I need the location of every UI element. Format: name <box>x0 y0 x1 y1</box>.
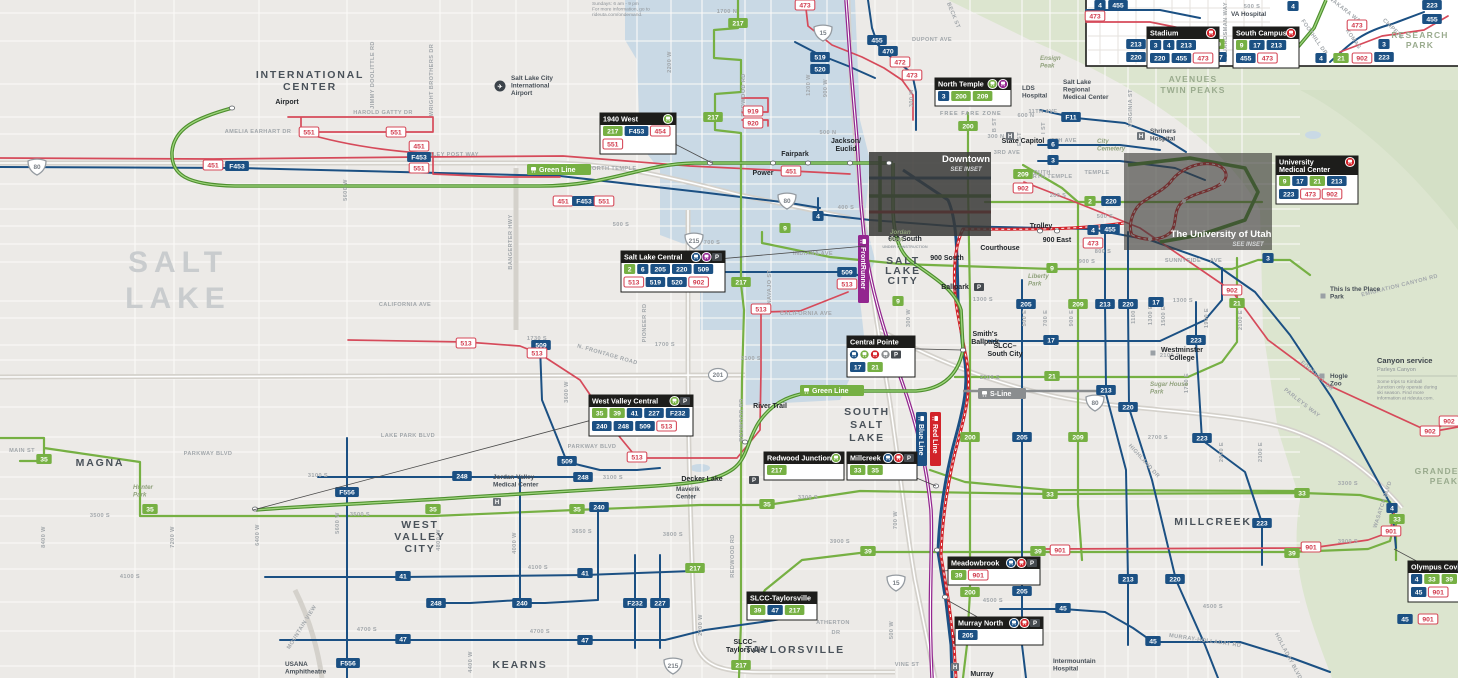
svg-text:3500 S: 3500 S <box>350 512 370 518</box>
street-label: AMELIA EARHART DR <box>225 129 292 135</box>
route-badge-473: 473 <box>1085 11 1105 21</box>
route-badge-F232: F232 <box>623 598 647 608</box>
svg-text:454: 454 <box>655 128 667 135</box>
route-badge-902: 902 <box>1322 189 1342 199</box>
svg-text:551: 551 <box>598 198 610 205</box>
svg-text:F453: F453 <box>229 163 245 170</box>
route-badge-F232: F232 <box>666 408 690 418</box>
svg-text:4: 4 <box>1091 227 1095 234</box>
route-badge-472: 472 <box>890 57 910 67</box>
svg-text:Liberty: Liberty <box>1028 273 1049 280</box>
svg-text:248: 248 <box>456 473 468 480</box>
svg-text:SUNNYSIDE: SUNNYSIDE <box>1165 258 1201 264</box>
svg-text:6400 W: 6400 W <box>255 524 261 546</box>
route-badge-220: 220 <box>1126 52 1146 62</box>
route-badge-248: 248 <box>614 421 634 431</box>
street-label: 700 E <box>1043 310 1049 327</box>
station-label-courthouse: Courthouse <box>980 245 1019 252</box>
svg-text:VIRGINIA ST: VIRGINIA ST <box>1128 89 1134 127</box>
svg-text:Amphitheatre: Amphitheatre <box>285 669 327 676</box>
street-label: 3100 S <box>603 475 623 481</box>
svg-text:International: International <box>511 83 550 90</box>
svg-text:900 South: 900 South <box>930 255 963 262</box>
station-label-900-east: 900 East <box>1043 237 1072 244</box>
street-label: 2200 W <box>667 51 673 73</box>
street-label: 4700 S <box>357 627 377 633</box>
svg-text:Hunter: Hunter <box>133 484 154 491</box>
svg-text:455: 455 <box>1104 226 1116 233</box>
d2232a-line-icon <box>1286 28 1295 37</box>
svg-text:920: 920 <box>747 120 759 127</box>
callout-redwood-junction: Redwood Junction217 <box>764 452 844 480</box>
route-badge-519: 519 <box>646 277 666 287</box>
d2232a-line-icon <box>1206 28 1215 37</box>
street-label: 500 N <box>820 130 837 136</box>
park-ride-icon: P <box>974 283 984 291</box>
svg-text:513: 513 <box>841 281 853 288</box>
svg-text:WRIGHT BROTHERS DR: WRIGHT BROTHERS DR <box>429 44 435 116</box>
svg-text:217: 217 <box>735 279 747 286</box>
route-badge-520: 520 <box>810 64 830 74</box>
station-dot <box>1054 229 1059 233</box>
svg-text:Ballpark: Ballpark <box>941 284 969 291</box>
route-badge-39: 39 <box>951 570 966 580</box>
svg-text:Hospital: Hospital <box>1150 136 1175 143</box>
svg-text:473: 473 <box>1305 191 1317 198</box>
street-label: 800 S <box>1095 249 1112 255</box>
route-badge-509: 509 <box>837 267 857 277</box>
svg-text:1200 W: 1200 W <box>806 74 812 96</box>
route-badge-217: 217 <box>731 277 751 287</box>
svg-text:217: 217 <box>607 128 619 135</box>
svg-text:213: 213 <box>1331 178 1343 185</box>
svg-text:1940 West: 1940 West <box>603 115 639 124</box>
svg-text:8400 W: 8400 W <box>41 526 47 548</box>
svg-text:509: 509 <box>561 458 573 465</box>
route-badge-4: 4 <box>1094 0 1105 10</box>
svg-text:6: 6 <box>641 266 645 273</box>
svg-text:Red Line: Red Line <box>931 424 938 454</box>
svg-text:21: 21 <box>871 364 879 371</box>
route-badge-902: 902 <box>1222 285 1242 295</box>
station-dot <box>934 548 939 552</box>
svg-text:KEARNS: KEARNS <box>492 659 547 671</box>
svg-text:901: 901 <box>973 572 985 579</box>
svg-text:220: 220 <box>1130 54 1142 61</box>
svg-text:205: 205 <box>655 266 667 273</box>
svg-text:Zoo: Zoo <box>1330 381 1342 388</box>
svg-text:LDS: LDS <box>1022 85 1036 92</box>
svg-text:JIMMY DOOLITTLE RD: JIMMY DOOLITTLE RD <box>370 41 376 109</box>
callout-south-campus: South Campus917213455473 <box>1233 27 1299 68</box>
svg-text:513: 513 <box>531 350 543 357</box>
route-badge-513: 513 <box>657 421 677 431</box>
svg-text:473: 473 <box>1262 55 1274 62</box>
street-label: 3900 S <box>830 539 850 545</box>
route-badge-2: 2 <box>624 264 635 274</box>
svg-text:North Temple: North Temple <box>938 80 984 89</box>
svg-text:Shriners: Shriners <box>1150 128 1176 135</box>
line-label-blue-line: Blue Line <box>916 412 927 466</box>
route-badge-F11: F11 <box>1061 112 1081 122</box>
route-badge-455: 455 <box>1236 53 1256 63</box>
svg-text:INTERNATIONAL: INTERNATIONAL <box>256 69 364 81</box>
svg-text:21: 21 <box>1337 55 1345 62</box>
svg-text:VA Hospital: VA Hospital <box>1231 11 1266 18</box>
street-label: 4100 S <box>528 565 548 571</box>
area-label-salt-lake-city: SALTLAKECITY <box>885 255 921 287</box>
svg-text:209: 209 <box>1017 171 1029 178</box>
svg-text:33: 33 <box>1298 490 1306 497</box>
svg-text:209: 209 <box>977 93 989 100</box>
route-badge-4: 4 <box>1315 53 1326 63</box>
street-label: 500 E <box>1022 310 1028 327</box>
route-badge-213: 213 <box>1095 299 1115 309</box>
route-badge-227: 227 <box>644 408 664 418</box>
svg-text:Park: Park <box>1150 389 1164 396</box>
svg-text:Trolley: Trolley <box>1030 223 1053 230</box>
route-badge-F556: F556 <box>335 487 359 497</box>
route-badge-902: 902 <box>1439 416 1458 426</box>
svg-text:200: 200 <box>964 589 976 596</box>
svg-text:39: 39 <box>613 410 621 417</box>
svg-text:33: 33 <box>854 467 862 474</box>
route-badge-F453: F453 <box>572 196 596 206</box>
svg-text:AVENUES: AVENUES <box>1169 74 1218 84</box>
svg-text:248: 248 <box>577 474 589 481</box>
street-label: 4700 S <box>530 629 550 635</box>
svg-text:This Is the Place: This Is the Place <box>1330 286 1381 293</box>
route-badge-513: 513 <box>527 348 547 358</box>
svg-text:Airport: Airport <box>275 99 299 106</box>
line-label-frontrunner: FrontRunner <box>858 235 869 303</box>
svg-text:15: 15 <box>819 30 827 37</box>
callout-north-temple: North Temple3200209FREE FARE ZONE <box>935 78 1011 117</box>
route-badge-551: 551 <box>386 127 406 137</box>
svg-text:35: 35 <box>146 506 154 513</box>
svg-text:227: 227 <box>654 600 666 607</box>
route-badge-45: 45 <box>1397 614 1412 624</box>
route-badge-33: 33 <box>1294 488 1309 498</box>
airport-icon: ✈ <box>495 81 506 92</box>
svg-text:Canyon service: Canyon service <box>1377 356 1432 365</box>
svg-text:470: 470 <box>882 48 894 55</box>
svg-text:REDWOOD RD: REDWOOD RD <box>739 398 745 441</box>
route-badge-45: 45 <box>1411 587 1426 597</box>
svg-text:17: 17 <box>1152 299 1160 306</box>
route-badge-519: 519 <box>810 52 830 62</box>
svg-text:9: 9 <box>1240 42 1244 49</box>
svg-text:The University of Utah: The University of Utah <box>1171 229 1272 240</box>
svg-text:2100 E: 2100 E <box>1238 310 1244 330</box>
route-badge-45: 45 <box>1055 603 1070 613</box>
1c5084-line-icon <box>883 453 892 462</box>
svg-text:9: 9 <box>1050 265 1054 272</box>
route-badge-4: 4 <box>1087 225 1098 235</box>
street-label: 1300 E <box>1148 305 1154 325</box>
svg-text:3100 S: 3100 S <box>308 473 328 479</box>
route-badge-2: 2 <box>1084 196 1095 206</box>
svg-text:80: 80 <box>1091 400 1099 407</box>
svg-text:SEE INSET: SEE INSET <box>950 167 983 173</box>
street-label: 500 S <box>613 222 630 228</box>
svg-text:217: 217 <box>707 114 719 121</box>
street-label: 2700 S <box>1148 435 1168 441</box>
svg-text:21: 21 <box>1233 300 1241 307</box>
route-badge-217: 217 <box>603 126 623 136</box>
street-label: 3500 S <box>350 512 370 518</box>
svg-text:33: 33 <box>1428 576 1436 583</box>
route-badge-220: 220 <box>672 264 692 274</box>
park-ride-icon: P <box>891 351 901 359</box>
route-badge-9: 9 <box>1279 176 1290 186</box>
route-badge-902: 902 <box>1352 53 1372 63</box>
svg-text:900 W: 900 W <box>823 79 829 97</box>
svg-text:TEMPLE: TEMPLE <box>1084 170 1109 176</box>
svg-text:BANGERTER HWY: BANGERTER HWY <box>508 214 514 269</box>
route-badge-223: 223 <box>1279 189 1299 199</box>
route-badge-21: 21 <box>1310 176 1325 186</box>
svg-text:700 S: 700 S <box>704 240 721 246</box>
street-label: 1700 N <box>717 9 737 15</box>
hospital-icon: H <box>951 663 959 671</box>
station-dot <box>805 161 810 165</box>
svg-text:Green Line: Green Line <box>539 167 576 174</box>
svg-text:80: 80 <box>783 198 791 205</box>
route-badge-200: 200 <box>960 587 980 597</box>
svg-text:11TH AVE: 11TH AVE <box>1028 109 1057 115</box>
svg-text:223: 223 <box>1196 435 1208 442</box>
route-badge-217: 217 <box>785 605 805 615</box>
state-route-201-shield: 201 <box>709 369 728 382</box>
route-badge-220: 220 <box>1150 53 1170 63</box>
route-badge-217: 217 <box>703 112 723 122</box>
svg-text:Salt Lake City: Salt Lake City <box>511 75 553 82</box>
route-badge-451: 451 <box>553 196 573 206</box>
street-label: JIMMY DOOLITTLE RD <box>370 41 376 109</box>
svg-text:455: 455 <box>1426 16 1438 23</box>
svg-text:Intermountain: Intermountain <box>1053 658 1096 665</box>
route-badge-217: 217 <box>731 660 751 670</box>
d2232a-line-icon <box>1345 157 1354 166</box>
svg-text:H: H <box>495 500 499 506</box>
svg-text:Euclid: Euclid <box>835 146 856 153</box>
route-badge-901: 901 <box>1050 545 1070 555</box>
route-badge-220: 220 <box>1101 196 1121 206</box>
svg-text:FREE FARE ZONE: FREE FARE ZONE <box>940 111 1002 117</box>
svg-text:901: 901 <box>1305 544 1317 551</box>
svg-text:9: 9 <box>783 225 787 232</box>
route-badge-513: 513 <box>751 304 771 314</box>
76b043-line-icon <box>860 350 869 359</box>
route-badge-551: 551 <box>603 139 623 149</box>
svg-text:Cemetery: Cemetery <box>1097 146 1126 153</box>
street-label: 5600 W <box>343 179 349 201</box>
place-marker-icon <box>1320 374 1325 379</box>
route-badge-217: 217 <box>685 563 705 573</box>
svg-text:500 S: 500 S <box>613 222 630 228</box>
svg-text:River Trail: River Trail <box>753 403 787 410</box>
route-badge-223: 223 <box>1422 0 1442 10</box>
svg-text:F453: F453 <box>629 128 645 135</box>
street-label: CALIFORNIA AVE <box>780 311 832 317</box>
svg-text:Central Pointe: Central Pointe <box>850 338 899 347</box>
d2232a-line-icon <box>894 453 903 462</box>
svg-text:Green Line: Green Line <box>812 388 849 395</box>
svg-text:5600 W: 5600 W <box>343 179 349 201</box>
route-badge-6: 6 <box>637 264 648 274</box>
svg-text:900 S: 900 S <box>1079 259 1096 265</box>
area-label-millcreek: MILLCREEK <box>1174 516 1251 528</box>
svg-text:ATHERTON: ATHERTON <box>816 620 850 626</box>
76b043-line-icon <box>663 114 672 123</box>
route-badge-4: 4 <box>1287 1 1298 11</box>
route-badge-509: 509 <box>557 456 577 466</box>
svg-text:Power: Power <box>752 170 773 177</box>
svg-text:Sugar House: Sugar House <box>1150 381 1189 388</box>
svg-text:33: 33 <box>1393 516 1401 523</box>
svg-text:Jordan: Jordan <box>890 229 911 236</box>
route-badge-21: 21 <box>1229 298 1244 308</box>
svg-text:H: H <box>1139 134 1143 140</box>
route-badge-213: 213 <box>1096 385 1116 395</box>
svg-text:3100 S: 3100 S <box>603 475 623 481</box>
route-badge-39: 39 <box>750 605 765 615</box>
route-badge-205: 205 <box>1016 299 1036 309</box>
svg-text:700 E: 700 E <box>1043 310 1049 327</box>
svg-text:509: 509 <box>698 266 710 273</box>
route-badge-17: 17 <box>850 362 865 372</box>
street-label: TEMPLE <box>1084 170 1109 176</box>
route-badge-9: 9 <box>892 296 903 306</box>
route-badge-6: 6 <box>1047 139 1058 149</box>
svg-text:902: 902 <box>693 279 705 286</box>
street-label: 300 W <box>909 89 915 107</box>
svg-text:3: 3 <box>942 93 946 100</box>
street-label: VINE ST <box>895 662 920 668</box>
d2232a-line-icon <box>870 350 879 359</box>
svg-text:223: 223 <box>1426 2 1438 9</box>
svg-text:223: 223 <box>1190 337 1202 344</box>
svg-text:Downtown: Downtown <box>942 154 990 165</box>
route-badge-47: 47 <box>577 635 592 645</box>
street-label: I ST <box>1041 122 1047 134</box>
street-label: 3800 S <box>663 532 683 538</box>
svg-text:4: 4 <box>1167 42 1171 49</box>
svg-text:Sundays: 6 am - 9 pm: Sundays: 6 am - 9 pm <box>592 1 639 7</box>
svg-text:4000 W: 4000 W <box>512 532 518 554</box>
callout-stadium: Stadium34213220455473 <box>1147 27 1219 68</box>
route-badge-17: 17 <box>1292 176 1307 186</box>
svg-text:Fairpark: Fairpark <box>781 151 809 158</box>
callout-university: UniversityMedical Center9172121322347390… <box>1276 156 1358 204</box>
svg-text:9: 9 <box>896 298 900 305</box>
svg-text:213: 213 <box>1122 576 1134 583</box>
station-dot <box>942 595 947 599</box>
svg-text:200: 200 <box>955 93 967 100</box>
svg-text:513: 513 <box>755 306 767 313</box>
svg-text:455: 455 <box>1240 55 1252 62</box>
svg-text:Redwood Junction: Redwood Junction <box>767 454 831 463</box>
transit-map: 1700 NDUPONT AVE1000 N600 N500 N300 NNOR… <box>0 0 1458 678</box>
svg-text:LAKE: LAKE <box>849 432 885 444</box>
svg-text:Medical Center: Medical Center <box>493 482 539 489</box>
route-badge-47: 47 <box>767 605 782 615</box>
route-badge-41: 41 <box>627 408 642 418</box>
svg-text:3: 3 <box>1154 42 1158 49</box>
route-badge-9: 9 <box>1236 40 1247 50</box>
route-badge-209: 209 <box>1013 169 1033 179</box>
route-badge-248: 248 <box>426 598 446 608</box>
route-badge-240: 240 <box>512 598 532 608</box>
svg-text:2: 2 <box>628 266 632 273</box>
svg-text:College: College <box>1169 355 1194 362</box>
street-label: 4400 W <box>468 651 474 673</box>
street-label: 1500 E <box>1161 306 1167 326</box>
route-badge-223: 223 <box>1252 518 1272 528</box>
svg-text:227: 227 <box>648 410 660 417</box>
svg-text:AMELIA EARHART DR: AMELIA EARHART DR <box>225 129 292 135</box>
svg-text:WILEY POST WAY: WILEY POST WAY <box>425 152 479 158</box>
svg-text:4: 4 <box>1098 2 1102 9</box>
svg-text:220: 220 <box>1154 55 1166 62</box>
svg-text:17: 17 <box>1047 337 1055 344</box>
svg-text:SALT: SALT <box>850 419 884 431</box>
svg-text:Salt Lake Central: Salt Lake Central <box>624 253 682 262</box>
svg-text:Park: Park <box>890 237 904 244</box>
route-badge-220: 220 <box>1118 402 1138 412</box>
svg-text:213: 213 <box>1271 42 1283 49</box>
route-badge-248: 248 <box>452 471 472 481</box>
svg-text:Medical Center: Medical Center <box>1063 94 1109 101</box>
svg-text:15: 15 <box>892 580 900 587</box>
svg-text:200: 200 <box>964 434 976 441</box>
route-badge-551: 551 <box>409 163 429 173</box>
water-decker-lake <box>690 464 710 472</box>
d2232a-line-icon <box>1017 558 1026 567</box>
route-badge-41: 41 <box>395 571 410 581</box>
d2232a-line-icon <box>1020 618 1029 627</box>
route-badge-9: 9 <box>779 223 790 233</box>
route-badge-509: 509 <box>694 264 714 274</box>
svg-text:901: 901 <box>1385 528 1397 535</box>
station-dot <box>742 440 747 444</box>
route-badge-35: 35 <box>36 454 51 464</box>
svg-text:Murray: Murray <box>970 671 993 678</box>
8a8d8f-line-icon <box>881 350 890 359</box>
park-ride-icon: P <box>680 397 690 405</box>
svg-text:✈: ✈ <box>497 84 502 91</box>
svg-text:RESEARCH: RESEARCH <box>1391 30 1448 40</box>
svg-text:SALT: SALT <box>128 246 228 279</box>
svg-text:209: 209 <box>1072 301 1084 308</box>
svg-text:205: 205 <box>962 632 974 639</box>
svg-text:2100 S: 2100 S <box>741 356 761 362</box>
svg-text:700 W: 700 W <box>893 511 899 529</box>
route-badge-47: 47 <box>395 634 410 644</box>
route-badge-9: 9 <box>1046 263 1057 273</box>
svg-text:35: 35 <box>871 467 879 474</box>
station-label-murray: Murray <box>970 671 993 678</box>
svg-text:902: 902 <box>1443 418 1455 425</box>
svg-text:Regional: Regional <box>1063 87 1090 94</box>
route-badge-39: 39 <box>609 408 624 418</box>
svg-text:GRANDEUR: GRANDEUR <box>1415 466 1458 476</box>
svg-text:213: 213 <box>1100 387 1112 394</box>
map-canvas: 1700 NDUPONT AVE1000 N600 N500 N300 NNOR… <box>0 0 1458 678</box>
route-badge-17: 17 <box>1148 297 1163 307</box>
street-label: 2300 E <box>1258 442 1264 462</box>
